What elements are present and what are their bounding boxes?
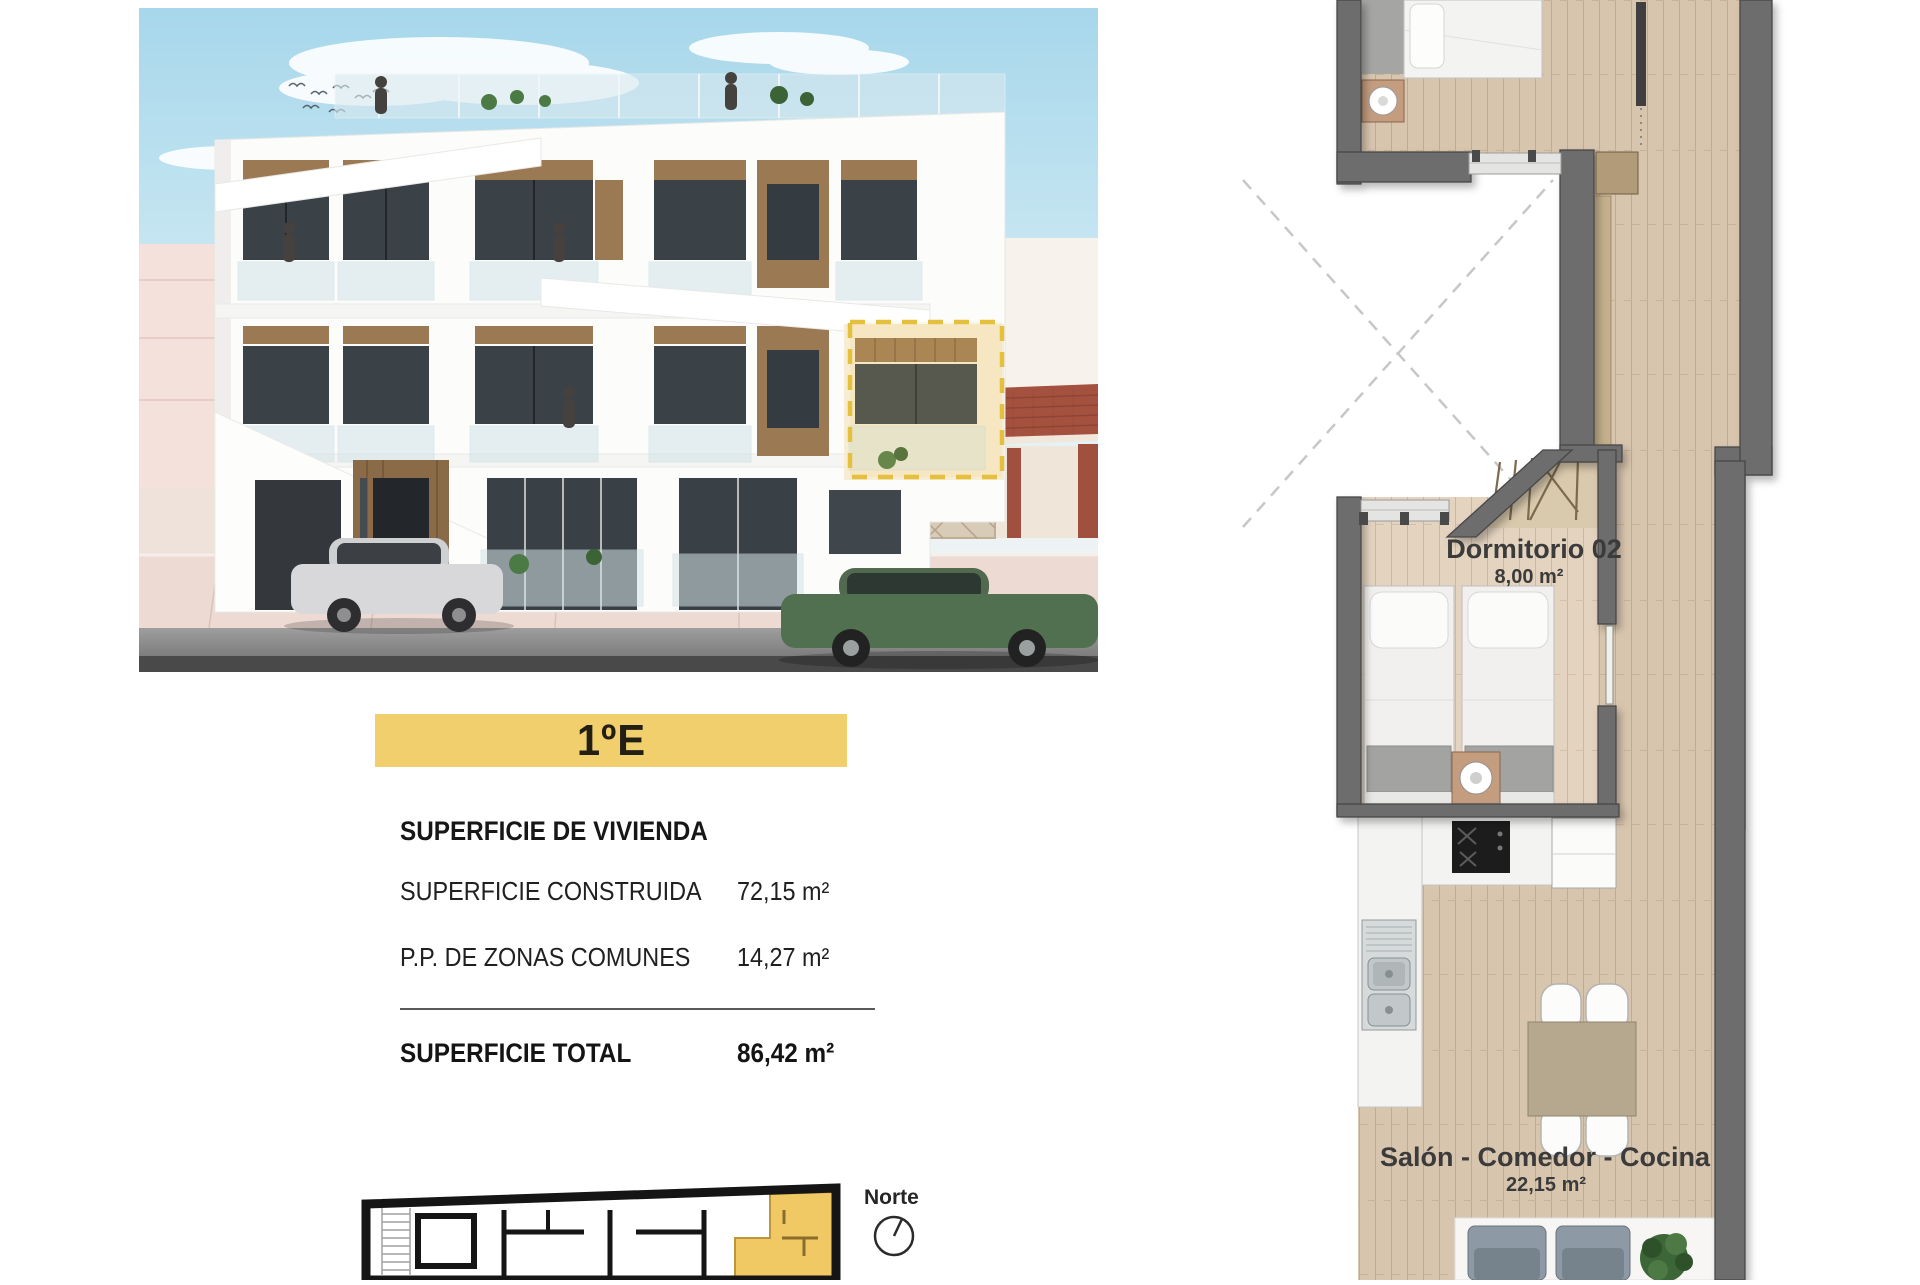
- fridge: [1552, 818, 1616, 888]
- room-area-salon: 22,15 m²: [1506, 1174, 1586, 1196]
- entry-closet: [1596, 152, 1638, 194]
- single-bed: [1364, 586, 1454, 806]
- terrace-cross-markings: [1243, 180, 1553, 527]
- floor-plan: Dormitorio 02 8,00 m² Salón - Comedor - …: [0, 0, 1920, 1280]
- bedroom-door-leaf: [1606, 626, 1613, 704]
- room-area-dormitorio-02: 8,00 m²: [1495, 566, 1564, 588]
- room-label-salon: Salón - Comedor - Cocina: [1380, 1142, 1711, 1172]
- cooktop: [1452, 821, 1510, 873]
- corridor-shelf: [1594, 196, 1611, 456]
- sink: [1362, 920, 1416, 1030]
- entry-door-leaf: [1636, 2, 1646, 106]
- brochure-page: { "page": {"width": 1920, "height": 1280…: [0, 0, 1920, 1280]
- pillow: [1410, 4, 1444, 68]
- dining-table: [1528, 1022, 1636, 1116]
- living-area-furniture: [1455, 1218, 1715, 1280]
- bed-headboard: [1362, 0, 1404, 74]
- room-label-dormitorio-02: Dormitorio 02: [1446, 534, 1622, 564]
